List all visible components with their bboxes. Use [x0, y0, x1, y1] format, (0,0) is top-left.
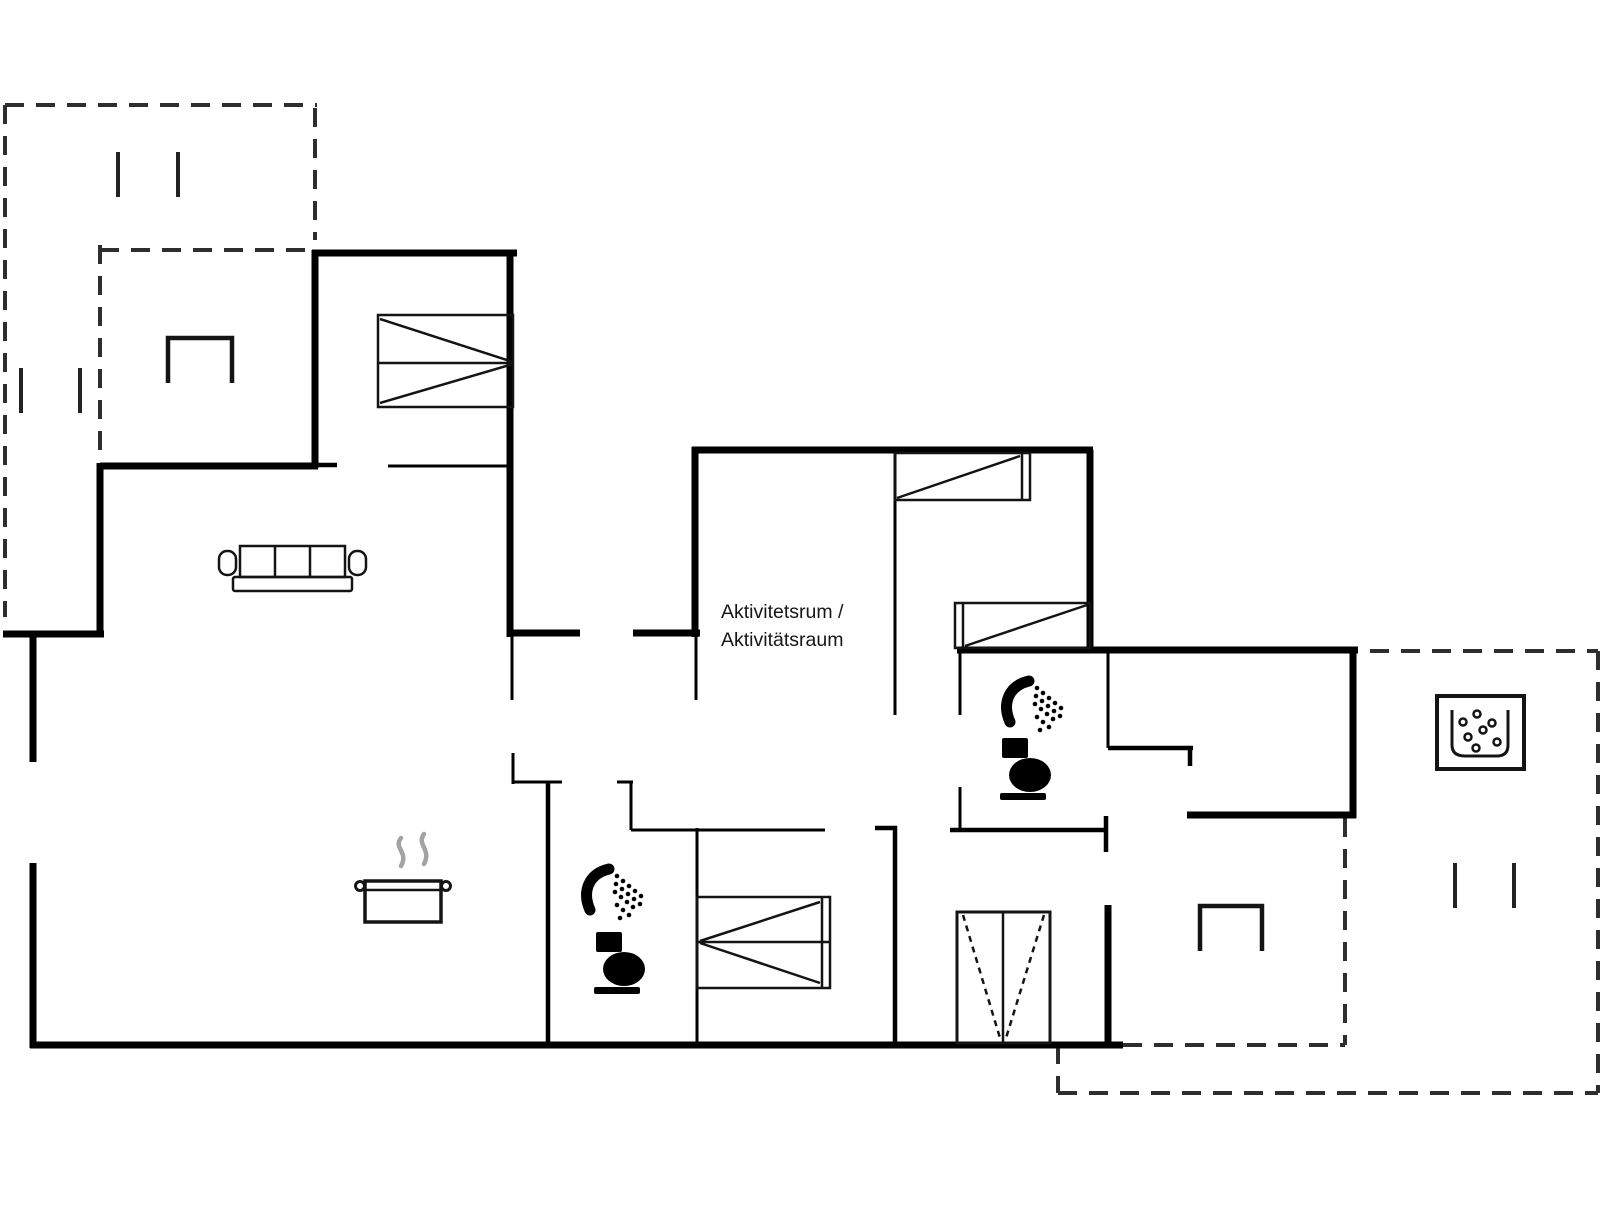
room-label-line2: Aktivitätsraum	[721, 629, 843, 651]
double-bed-icon	[378, 315, 513, 407]
armchair-icon	[1200, 906, 1262, 951]
walls	[3, 250, 1358, 1048]
furniture	[168, 315, 1524, 1043]
room-label: Aktivitetsrum / Aktivitätsraum	[721, 601, 844, 651]
sofa-icon	[219, 546, 366, 591]
floor-plan-svg: Aktivitetsrum / Aktivitätsraum	[0, 0, 1606, 1205]
floor-plan: Aktivitetsrum / Aktivitätsraum	[0, 0, 1606, 1205]
terrace-outline-dashed	[5, 105, 1598, 1093]
single-bed-icon	[895, 453, 1030, 500]
toilet-icon	[1000, 738, 1051, 800]
hot-tub-icon	[1437, 696, 1524, 769]
post-mark-icon	[21, 152, 1514, 908]
terrace-outlines	[5, 105, 1598, 1093]
wall-thick	[3, 250, 1358, 1048]
single-bed-icon	[955, 603, 1090, 648]
wall-medium	[315, 465, 1193, 1045]
wardrobe-icon	[957, 912, 1050, 1043]
steam-icon	[399, 834, 427, 866]
double-bed-icon	[697, 897, 830, 988]
armchair-icon	[168, 338, 232, 383]
shower-icon	[587, 869, 644, 920]
cooking-pot-icon	[356, 834, 451, 922]
shower-icon	[1007, 681, 1064, 732]
room-label-line1: Aktivitetsrum /	[721, 601, 844, 623]
wall-thin	[388, 450, 1108, 1045]
toilet-icon	[594, 932, 645, 994]
